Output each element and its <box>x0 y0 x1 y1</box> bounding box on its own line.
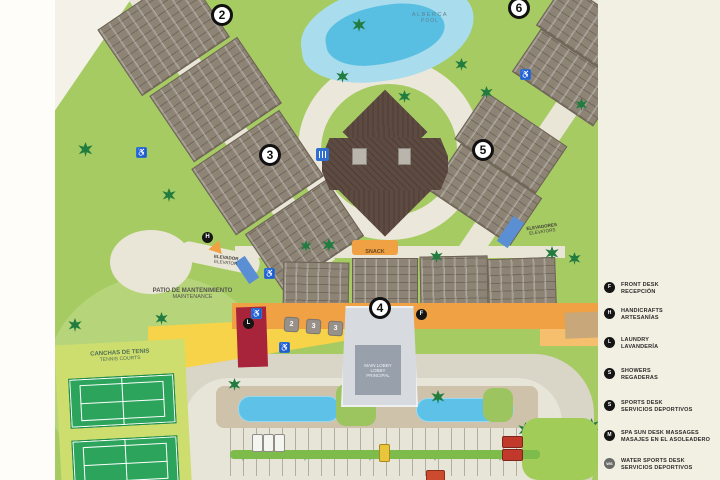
legend-item-spa-massages: M SPA SUN DESK MASSAGESMASAJES EN EL ASO… <box>604 430 710 444</box>
resort-map-page: CANCHAS DE TENIS TENNIS COURTS 2 3 3 ALB… <box>0 0 720 480</box>
palm-tree-icon <box>78 142 93 157</box>
shop-tile: 3 <box>306 319 322 335</box>
building-5-marker: 5 <box>472 139 494 161</box>
car-orange <box>426 470 445 480</box>
building-4-block <box>420 255 489 308</box>
tennis-label: CANCHAS DE TENIS TENNIS COURTS <box>55 347 185 366</box>
palm-tree-icon <box>455 58 468 71</box>
restrooms-icon <box>316 148 329 161</box>
car-red <box>502 436 523 448</box>
skylight <box>398 148 411 165</box>
accessibility-icon: ♿ <box>279 342 290 353</box>
palm-tree-icon <box>162 188 176 202</box>
legend-item-front-desk: F FRONT DESKRECEPCIÓN <box>604 282 659 296</box>
tennis-court <box>71 435 179 480</box>
sports-desk-icon: S <box>604 400 615 411</box>
resort-map: CANCHAS DE TENIS TENNIS COURTS 2 3 3 ALB… <box>55 0 598 480</box>
building-4-block <box>487 257 557 309</box>
snack-bar: SNACK <box>352 240 398 255</box>
accessibility-icon: ♿ <box>520 69 531 80</box>
shop-tile: 3 <box>328 321 344 337</box>
legend-item-handicrafts: H HANDICRAFTSARTESANÍAS <box>604 308 663 322</box>
legend-item-showers: S SHOWERSREGADERAS <box>604 368 658 382</box>
tennis-area: CANCHAS DE TENIS TENNIS COURTS <box>55 339 192 480</box>
handicrafts-icon: H <box>604 308 615 319</box>
palm-tree-icon <box>568 252 581 265</box>
building-3-marker: 3 <box>259 144 281 166</box>
building-6-marker: 6 <box>508 0 530 19</box>
lobby-core: MAIN LOBBY LOBBY PRINCIPAL <box>355 345 401 395</box>
building-4-marker: 4 <box>369 297 391 319</box>
accessibility-icon: ♿ <box>264 268 275 279</box>
grass-patch <box>522 418 598 480</box>
lobby-label: MAIN LOBBY LOBBY PRINCIPAL <box>355 363 401 378</box>
pond <box>238 396 340 422</box>
legend-item-sports-desk: S SPORTS DESKSERVICIOS DEPORTIVOS <box>604 400 692 414</box>
spa-massages-icon: M <box>604 430 615 441</box>
tan-kiosk <box>565 311 598 338</box>
cart <box>252 434 263 452</box>
pool-water <box>322 0 449 71</box>
water-sports-icon: WS <box>604 458 615 469</box>
building-2-marker: 2 <box>211 4 233 26</box>
skylight <box>352 148 367 165</box>
snack-label: SNACK <box>365 249 385 255</box>
legend-panel: F FRONT DESKRECEPCIÓN H HANDICRAFTSARTES… <box>598 0 720 480</box>
garden-island <box>483 388 513 422</box>
tennis-court <box>68 373 176 428</box>
laundry-icon: L <box>604 337 615 348</box>
cul-de-sac <box>110 230 192 294</box>
handicrafts-marker: H <box>202 232 213 243</box>
showers-icon: S <box>604 368 615 379</box>
cart <box>274 434 285 452</box>
cart <box>263 434 274 452</box>
front-desk-icon: F <box>604 282 615 293</box>
front-desk-marker: F <box>416 309 427 320</box>
laundry-marker: L <box>243 318 254 329</box>
accessibility-icon: ♿ <box>251 308 262 319</box>
legend-item-laundry: L LAUNDRYLAVANDERÍA <box>604 337 658 351</box>
car-red <box>502 449 523 461</box>
shop-tile: 2 <box>284 317 300 333</box>
cart-yellow <box>379 444 390 462</box>
main-building-roof <box>322 138 448 190</box>
legend-item-water-sports: WS WATER SPORTS DESKSERVICIOS DEPORTIVOS <box>604 458 692 472</box>
maintenance-label: PATIO DE MANTENIMIENTO MAINTENANCE <box>115 288 270 300</box>
accessibility-icon: ♿ <box>136 147 147 158</box>
pool-label: ALBERCA POOL <box>395 12 465 24</box>
